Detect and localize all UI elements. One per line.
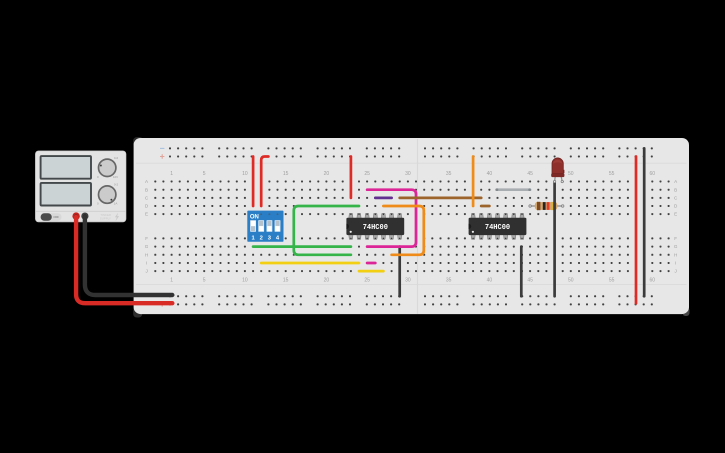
svg-text:E: E <box>674 212 677 217</box>
svg-text:1: 1 <box>170 277 173 283</box>
svg-text:1: 1 <box>170 171 173 177</box>
svg-text:H: H <box>674 252 677 257</box>
svg-text:45: 45 <box>527 171 533 177</box>
svg-text:40: 40 <box>487 171 493 177</box>
svg-text:50: 50 <box>568 277 574 283</box>
svg-text:F: F <box>674 236 677 241</box>
svg-text:55: 55 <box>609 171 615 177</box>
svg-text:10V: 10V <box>113 175 118 179</box>
svg-text:B: B <box>145 187 148 192</box>
svg-text:E: E <box>145 212 148 217</box>
svg-text:25: 25 <box>364 277 370 283</box>
svg-text:25: 25 <box>364 171 370 177</box>
svg-text:40: 40 <box>487 277 493 283</box>
svg-text:5: 5 <box>203 171 206 177</box>
svg-text:50: 50 <box>568 171 574 177</box>
svg-text:G: G <box>145 244 149 249</box>
svg-text:2: 2 <box>260 235 263 241</box>
svg-text:30: 30 <box>405 277 411 283</box>
svg-text:0-6: 0-6 <box>114 156 119 160</box>
svg-text:60: 60 <box>650 277 656 283</box>
svg-text:G: G <box>674 244 678 249</box>
svg-text:F: F <box>145 236 148 241</box>
svg-text:OFF: OFF <box>53 215 59 219</box>
svg-text:10: 10 <box>242 277 248 283</box>
svg-text:1A: 1A <box>114 202 118 206</box>
svg-text:30: 30 <box>405 171 411 177</box>
svg-text:15: 15 <box>283 277 289 283</box>
svg-text:10: 10 <box>242 171 248 177</box>
svg-text:I: I <box>675 261 676 266</box>
svg-text:20: 20 <box>324 277 330 283</box>
svg-text:5: 5 <box>203 277 206 283</box>
svg-text:60: 60 <box>650 171 656 177</box>
svg-text:35: 35 <box>446 171 452 177</box>
svg-text:45: 45 <box>527 277 533 283</box>
svg-text:55: 55 <box>609 277 615 283</box>
svg-text:20: 20 <box>324 171 330 177</box>
svg-text:ON: ON <box>250 214 259 220</box>
svg-text:74HC00: 74HC00 <box>363 224 388 232</box>
svg-text:74HC00: 74HC00 <box>485 224 510 232</box>
svg-text:35: 35 <box>446 277 452 283</box>
svg-text:15: 15 <box>283 171 289 177</box>
svg-text:J: J <box>675 269 677 274</box>
svg-text:SUPPLY: SUPPLY <box>100 216 111 220</box>
svg-text:J: J <box>145 269 147 274</box>
svg-text:B: B <box>674 187 677 192</box>
svg-text:I: I <box>146 261 147 266</box>
svg-text:H: H <box>145 252 148 257</box>
svg-text:0-2: 0-2 <box>114 183 119 187</box>
